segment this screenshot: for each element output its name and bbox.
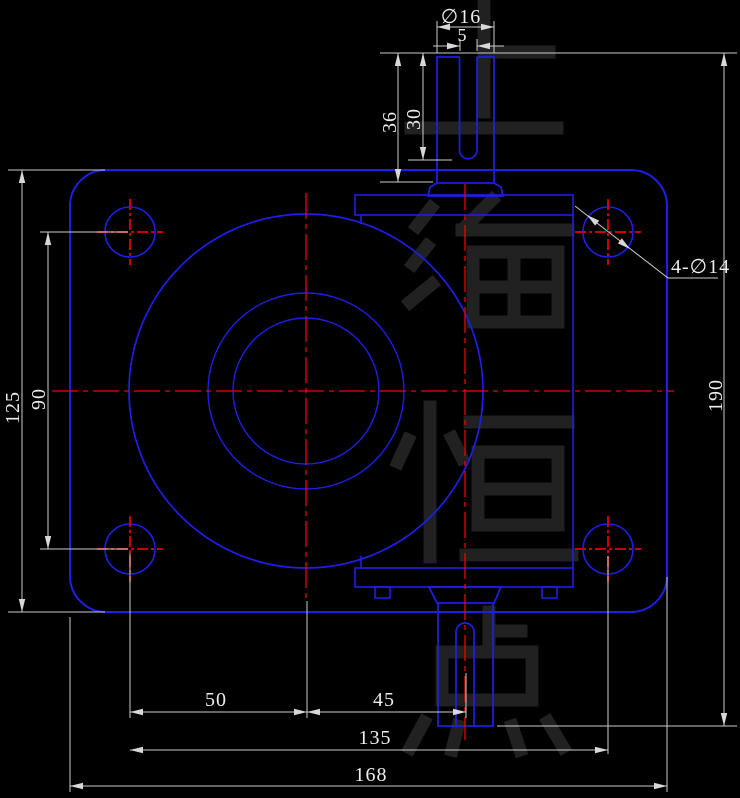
dim-overall-height: 190 [705,379,727,412]
watermark-char-dian [410,612,563,750]
dimensions: ∅16 5 36 30 125 90 190 4-∅14 50 45 135 1… [2,6,737,792]
input-shaft-left-edge [437,57,460,183]
dim-plate-height: 125 [2,391,24,424]
housing-foot-right [542,587,557,598]
housing-top-flange [355,195,573,215]
housing-bottom-flange [355,568,573,587]
watermark-char-heng [398,407,572,557]
input-shaft-keyway [460,57,478,159]
dim-keyway-depth: 30 [403,108,425,130]
engineering-drawing: 上海恒点 [0,0,740,798]
watermark-char-shang [411,0,557,128]
watermark-char-hai [410,200,568,322]
dim-shaft-length: 36 [379,111,401,133]
dim-plate-width: 168 [355,764,388,786]
dim-bolt-pitch-horizontal: 135 [359,727,392,749]
dim-center-to-output-shaft: 45 [373,689,395,711]
housing-foot-left [375,587,390,598]
dim-bolt-holes: 4-∅14 [671,256,730,278]
dimension-lines [8,21,737,792]
cad-drawing-canvas: 上海恒点 [0,0,740,798]
dim-center-to-left-bolt: 50 [205,689,227,711]
dim-bolt-pitch-vertical: 90 [28,388,50,410]
dimension-arrows [19,24,727,789]
dimension-labels: ∅16 5 36 30 125 90 190 4-∅14 50 45 135 1… [2,6,730,786]
centerlines [52,184,674,740]
dim-keyway-width: 5 [458,25,467,45]
